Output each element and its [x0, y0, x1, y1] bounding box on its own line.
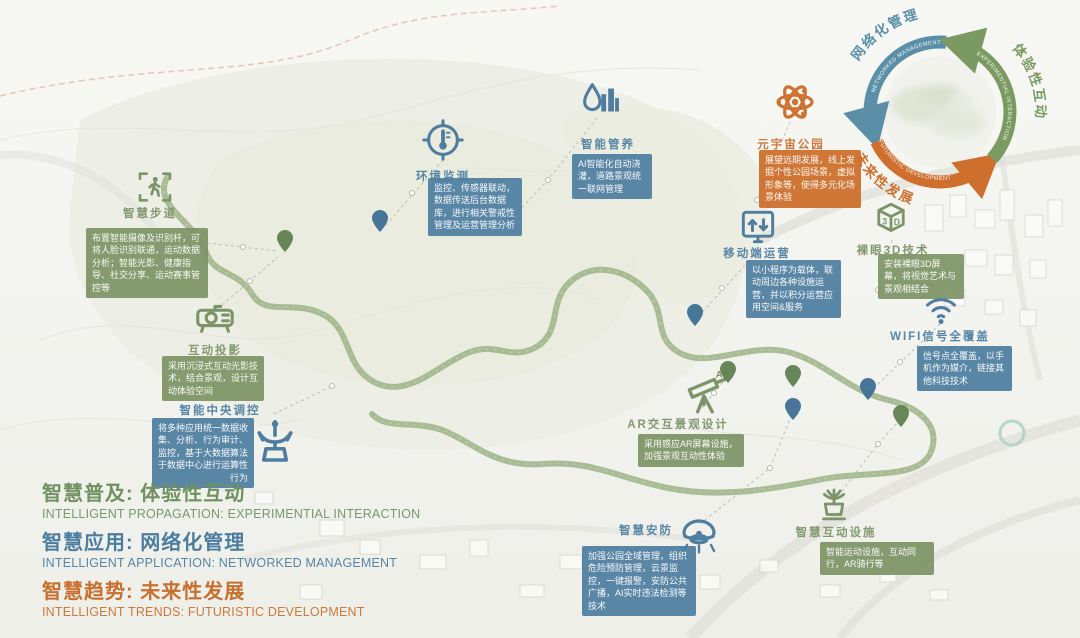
- callout-desc-wifi: 信号点全覆盖，以手机作为媒介，链接其他科技技术: [917, 346, 1012, 391]
- atom-icon: [771, 78, 819, 126]
- callout-desc-env: 监控、传感器联动，数据传送后台数据库，进行相关警戒性管理及运营管理分析: [428, 178, 522, 236]
- map-pin-blue: [687, 304, 703, 326]
- callout-label-mobile: 移动端运营: [723, 245, 791, 261]
- legend-zh: 智慧普及: 体验性互动: [42, 483, 420, 506]
- thermometer-target-icon: [420, 117, 466, 163]
- water-greening-icon: [576, 77, 622, 123]
- legend-en: INTELLIGENT PROPAGATION: EXPERIMENTIAL I…: [42, 507, 420, 521]
- legend-zh: 智慧趋势: 未来性发展: [42, 581, 420, 604]
- callout-desc-mobile: 以小程序为载体，联动周边各种设施运营，并以积分运营应用空间&服务: [746, 260, 841, 318]
- callout-desc-security: 加强公园全域管理，组织危险预防管理，云景监控，一键报警，安防公共广播，AI实时违…: [582, 546, 696, 616]
- map-pin-blue: [785, 398, 801, 420]
- mobile-monitor-icon: [736, 205, 780, 249]
- map-pin-blue: [372, 210, 388, 232]
- callout-desc-walkway: 布置智能摄像及识别杆，可将人脸识别联通，运动数据分析；智能光影、健康指导、社交分…: [86, 228, 208, 298]
- map-pin-blue: [860, 378, 876, 400]
- cube-3d-icon: 3D: [870, 199, 912, 241]
- cycle-center-map: [884, 56, 996, 168]
- control-tower-icon: [248, 415, 302, 469]
- map-pin-green: [893, 405, 909, 427]
- callout-desc-interactive: 智能运动设施，互动同行，AR骑行等: [820, 542, 934, 575]
- fountain-facility-icon: [813, 483, 855, 525]
- callout-label-maintain: 智能管养: [581, 136, 635, 152]
- svg-text:3: 3: [882, 217, 887, 227]
- legend-item-trends: 智慧趋势: 未来性发展 INTELLIGENT TRENDS: FUTURIST…: [42, 581, 420, 619]
- legend-item-propagation: 智慧普及: 体验性互动 INTELLIGENT PROPAGATION: EXP…: [42, 483, 420, 521]
- callout-desc-projection: 采用沉浸式互动光影技术，结合景观，设计互动体验空间: [162, 356, 264, 401]
- callout-desc-metaverse: 展望远期发展，线上发掘个性公园场景，虚拟形象等，使得多元化场景体验: [759, 150, 861, 208]
- legend-en: INTELLIGENT APPLICATION: NETWORKED MANAG…: [42, 556, 420, 570]
- callout-label-central: 智能中央调控: [180, 402, 261, 418]
- legend-en: INTELLIGENT TRENDS: FUTURISTIC DEVELOPME…: [42, 605, 420, 619]
- legend-zh: 智慧应用: 网络化管理: [42, 532, 420, 555]
- callout-label-walkway: 智慧步道: [123, 205, 177, 221]
- callout-label-security: 智慧安防: [619, 522, 673, 538]
- callout-label-ar: AR交互景观设计: [627, 416, 729, 432]
- legend-item-application: 智慧应用: 网络化管理 INTELLIGENT APPLICATION: NET…: [42, 532, 420, 570]
- legend: 智慧普及: 体验性互动 INTELLIGENT PROPAGATION: EXP…: [42, 483, 420, 630]
- callout-desc-central: 将多种应用统一数据收集、分析、行为审计、监控，基于大数据算法于数据中心进行运算性…: [152, 418, 254, 488]
- map-pin-green: [720, 361, 736, 383]
- callout-label-wifi: WIFI信号全覆盖: [890, 328, 990, 344]
- map-pin-green: [785, 365, 801, 387]
- wifi-icon: [918, 284, 964, 330]
- callout-desc-maintain: AI智能化自动浇灌，道路景观统一联网管理: [572, 154, 652, 199]
- walking-trail-icon: [135, 167, 175, 207]
- callout-desc-ar: 采用感应AR屏幕设施，加强景观互动性体验: [638, 434, 744, 467]
- projector-icon: [192, 293, 238, 339]
- smart-park-infographic: 网络化管理 体验性互动 未来性发展 NETWORKED MANAGEMENT E…: [0, 0, 1080, 638]
- map-pin-green: [277, 230, 293, 252]
- svg-text:D: D: [894, 217, 900, 227]
- callout-label-interactive: 智慧互动设施: [796, 524, 877, 540]
